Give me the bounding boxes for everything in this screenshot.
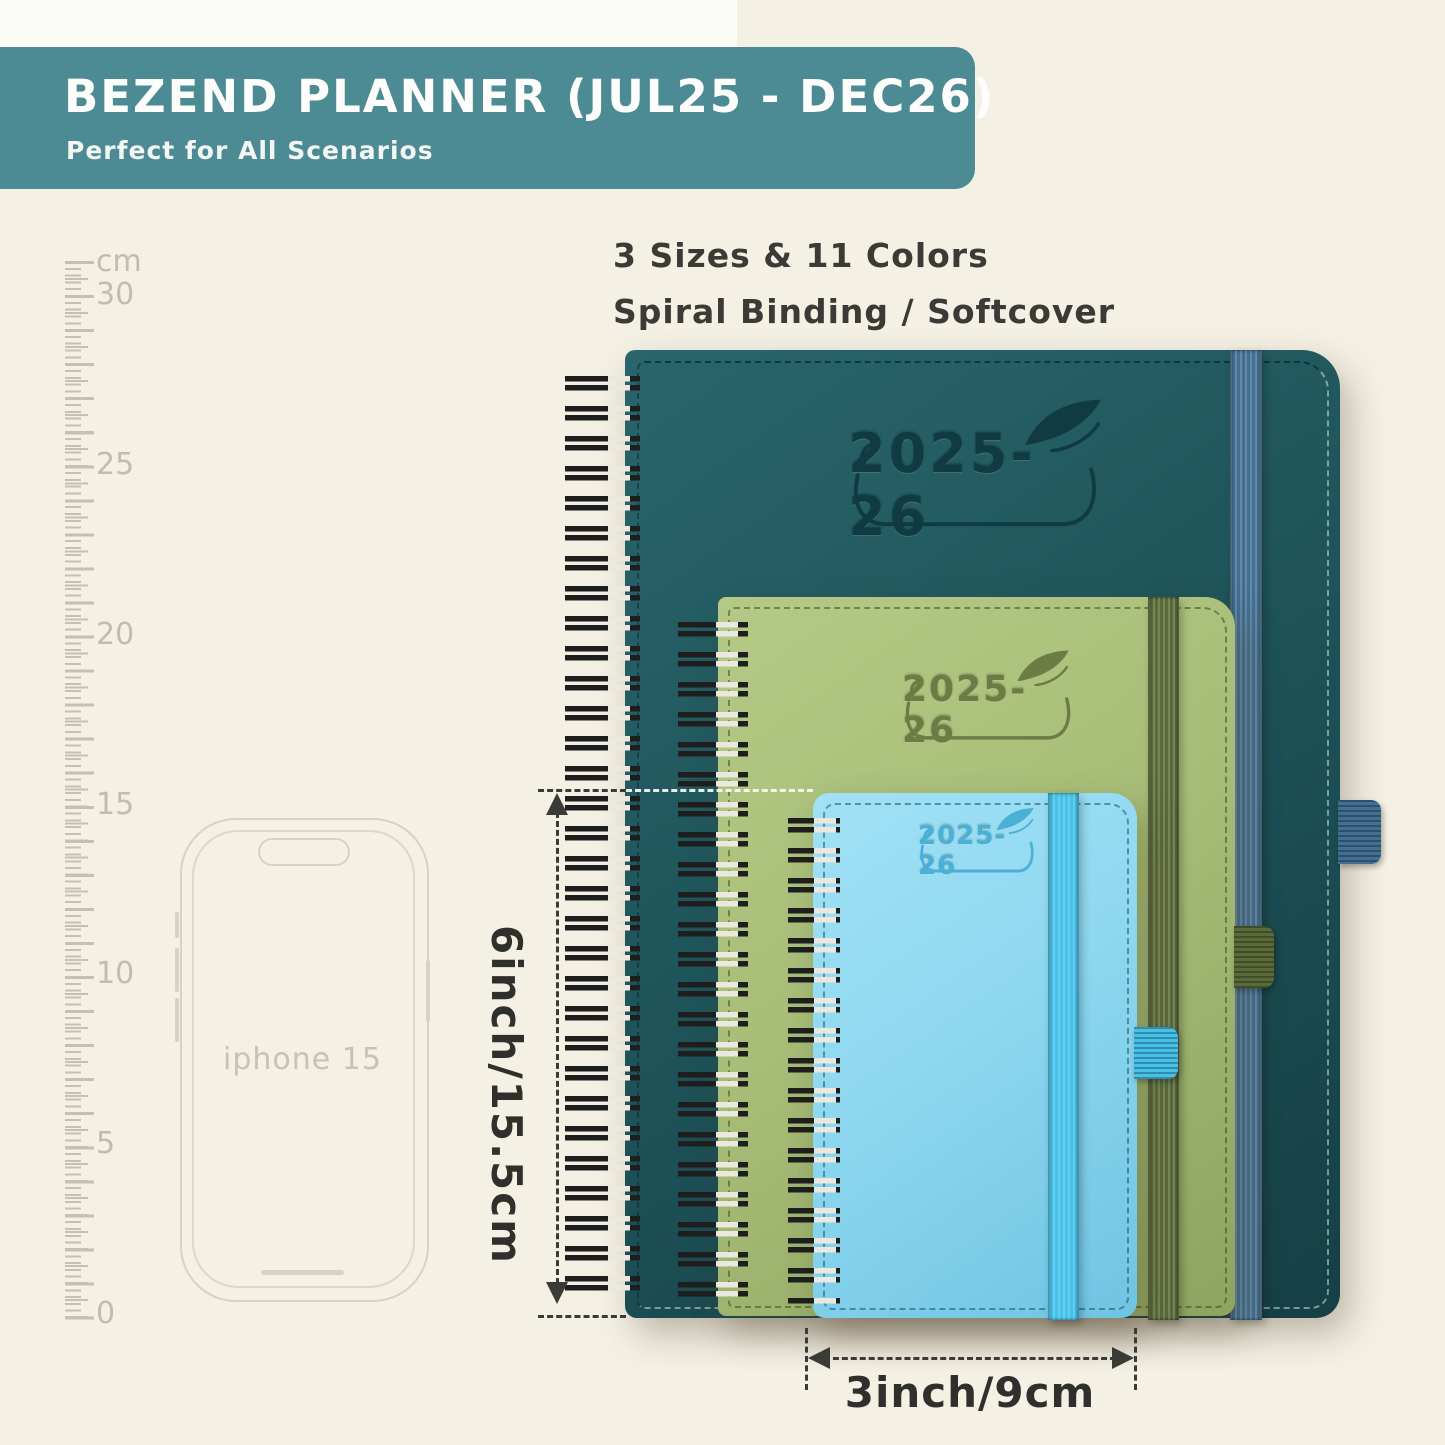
ruler-label-0: 0 (96, 1298, 115, 1330)
page-title: BEZEND PLANNER (JUL25 - DEC26) (64, 70, 944, 123)
planner-small-spiral-highlight (814, 818, 836, 1306)
width-dim-label: 3inch/9cm (830, 1368, 1110, 1417)
phone-home-indicator (261, 1270, 344, 1275)
planner-medium-spiral-highlight (716, 622, 738, 1302)
planner-large-pen-loop (1338, 800, 1381, 864)
phone-dynamic-island (258, 838, 350, 866)
phone-volume-down-button (175, 998, 179, 1042)
width-dim-right-stub (1134, 1328, 1137, 1390)
logo-bracket (918, 828, 1036, 874)
logo-bracket (902, 678, 1074, 742)
planner-large-logo: 2025-26 (848, 440, 1102, 530)
planner-small-elastic-band (1048, 793, 1079, 1320)
phone-power-button (426, 960, 430, 1022)
planner-medium-pen-loop (1234, 926, 1274, 988)
planner-large-spiral-highlight (608, 376, 630, 1302)
height-dim-line (556, 812, 559, 1284)
phone-model-label: iphone 15 (182, 1042, 423, 1077)
phone-mute-switch (175, 912, 179, 938)
height-dim-top-connector (538, 789, 626, 792)
width-dim-arrow-right (1112, 1347, 1134, 1369)
ruler-label-25: 25 (96, 449, 134, 481)
width-dim-arrow-left (808, 1347, 830, 1369)
ruler-cm-ticks (65, 261, 94, 1320)
intro-line-binding: Spiral Binding / Softcover (613, 292, 1115, 331)
width-dim-line (824, 1357, 1116, 1360)
height-dim-label: 6inch/15.5cm (482, 925, 531, 1265)
height-dim-arrow-up (546, 793, 568, 815)
feather-icon (994, 806, 1036, 834)
planner-medium-logo: 2025-26 (902, 678, 1074, 742)
top-white-strip (0, 0, 737, 47)
height-dim-arrow-down (546, 1282, 568, 1304)
feather-icon (1020, 396, 1106, 452)
phone-volume-up-button (175, 948, 179, 992)
planner-small-logo: 2025-26 (918, 828, 1036, 874)
ruler-label-20: 20 (96, 619, 134, 651)
ruler-unit-label: cm (96, 246, 142, 278)
height-dim-top-connector-on-cover (626, 789, 813, 792)
product-infographic: BEZEND PLANNER (JUL25 - DEC26) Perfect f… (0, 0, 1445, 1445)
planner-small-pen-loop (1134, 1027, 1178, 1079)
intro-line-sizes: 3 Sizes & 11 Colors (613, 236, 989, 275)
ruler-label-15: 15 (96, 789, 134, 821)
ruler-label-10: 10 (96, 958, 134, 990)
height-dim-bottom-connector (538, 1315, 626, 1318)
ruler-label-30: 30 (96, 279, 134, 311)
ruler-label-5: 5 (96, 1128, 115, 1160)
logo-bracket (848, 440, 1102, 530)
page-subtitle: Perfect for All Scenarios (66, 136, 434, 165)
feather-icon (1014, 648, 1072, 686)
planner-medium-elastic-band (1148, 597, 1179, 1320)
